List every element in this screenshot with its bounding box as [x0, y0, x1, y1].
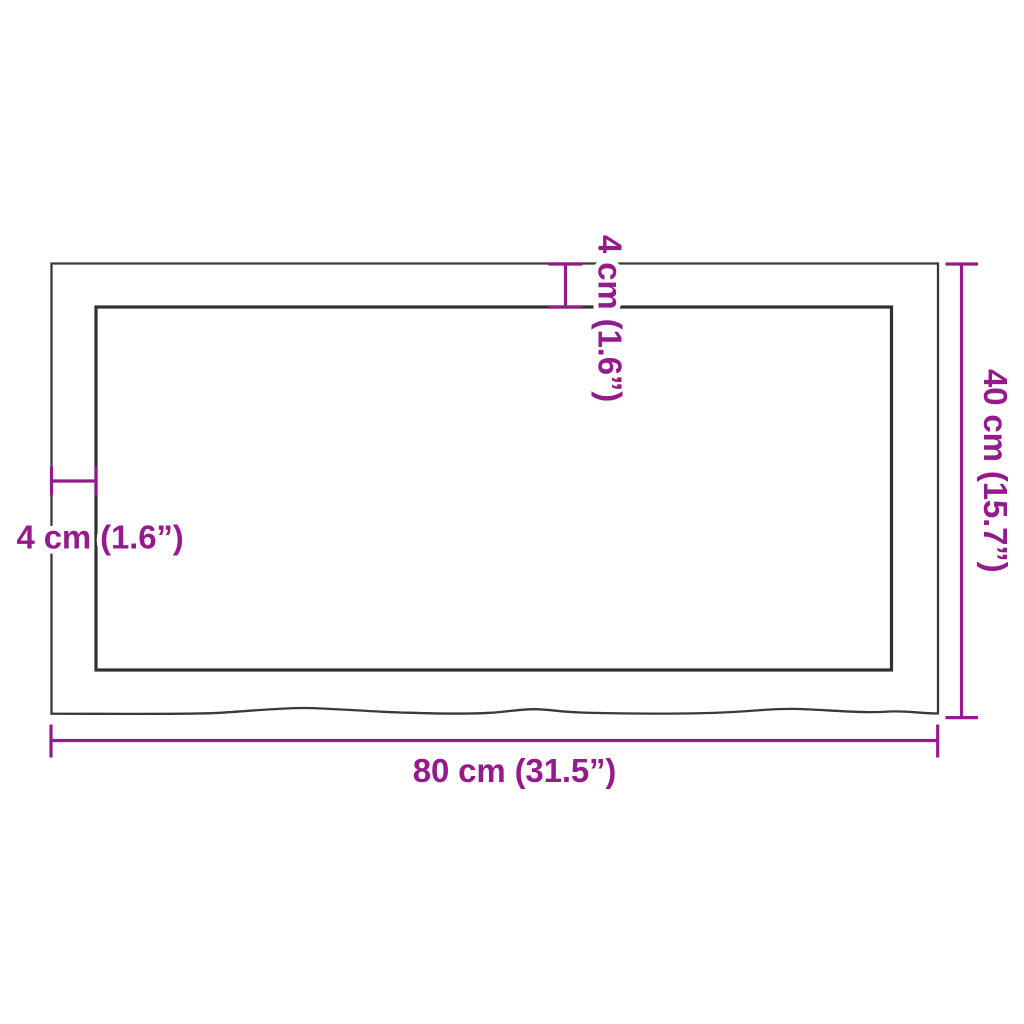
svg-text:40 cm (15.7”): 40 cm (15.7”)	[977, 369, 1014, 573]
svg-text:4 cm (1.6”): 4 cm (1.6”)	[17, 518, 184, 555]
svg-text:4 cm (1.6”): 4 cm (1.6”)	[592, 235, 629, 402]
svg-text:80 cm (31.5”): 80 cm (31.5”)	[413, 752, 617, 789]
